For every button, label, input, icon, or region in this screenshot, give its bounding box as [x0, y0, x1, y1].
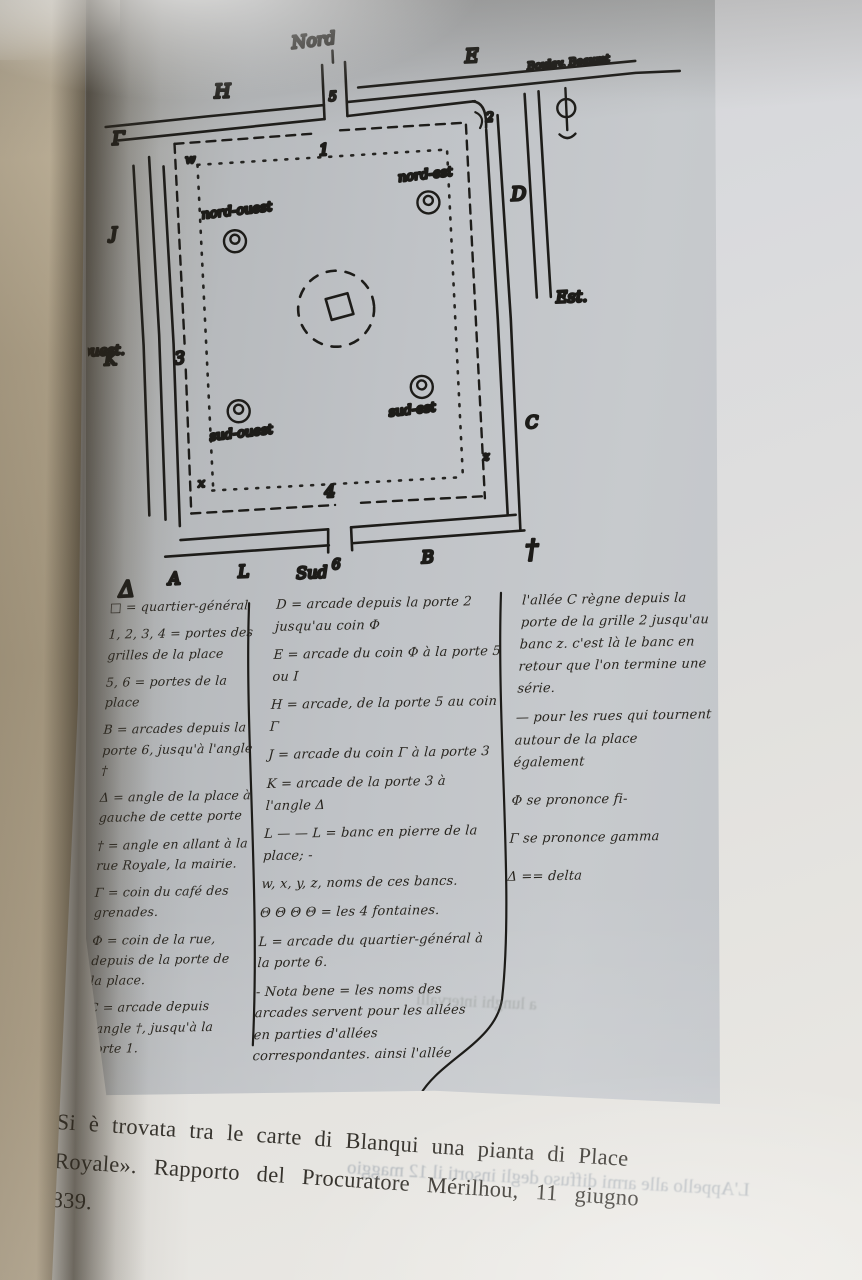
- gate-5: 5: [328, 89, 337, 104]
- legend-column-3: l'allée C règne depuis la porte de la gr…: [507, 587, 719, 896]
- gutter-shadow: [36, 0, 162, 1280]
- legend-entry: — pour les rues qui tournent autour de l…: [513, 705, 712, 775]
- place-royale-map: Nord Sud Est. ouest. Boulev. Beaumt H E …: [73, 0, 720, 618]
- legend-entry: L — — L = banc en pierre de la place; -: [262, 820, 492, 867]
- fountain-se: [410, 375, 433, 398]
- gate-3: 3: [174, 349, 186, 369]
- legend-entry: Δ == delta: [507, 863, 704, 889]
- legend-entry: K = arcade de la porte 3 à l'angle Δ: [265, 770, 495, 817]
- label-C: C: [525, 413, 539, 434]
- fountain-label-se: sud-est: [388, 400, 438, 420]
- fountain-nw: [223, 230, 246, 253]
- legend-entry: L = arcade du quartier-général à la port…: [257, 928, 487, 975]
- legend-entry: D = arcade depuis la porte 2 jusqu'au co…: [274, 591, 504, 638]
- legend-entry: J = arcade du coin Γ à la porte 3: [268, 741, 497, 767]
- label-D: D: [510, 183, 527, 206]
- gate-4: 4: [323, 482, 336, 503]
- legend-entry: E = arcade du coin Φ à la porte 5 ou I: [272, 641, 502, 688]
- fountain-ne: [417, 191, 440, 214]
- label-A: A: [166, 569, 181, 590]
- east-wall: [473, 91, 562, 532]
- book-page-photo: Nord Sud Est. ouest. Boulev. Beaumt H E …: [0, 0, 862, 1280]
- label-E: E: [463, 45, 479, 68]
- legend-entry: l'allée C règne depuis la porte de la gr…: [517, 587, 719, 701]
- fountain-sw: [227, 400, 250, 423]
- bench-z: z: [482, 449, 491, 463]
- bench-x: x: [198, 476, 206, 490]
- gate-1: 1: [318, 140, 329, 159]
- legend-entry: Θ Θ Θ Θ = les 4 fontaines.: [259, 899, 488, 925]
- facsimile-plan: Nord Sud Est. ouest. Boulev. Beaumt H E …: [86, 0, 720, 1104]
- gate-2: 2: [484, 110, 494, 125]
- legend-entry: Γ se prononce gamma: [509, 825, 706, 851]
- bench-w: w: [185, 152, 197, 166]
- central-monument: [296, 269, 375, 348]
- legend-entry: w, x, y, z, noms de ces bancs.: [261, 870, 490, 896]
- label-B: B: [420, 548, 434, 569]
- legend-entry: Φ se prononce fi-: [511, 787, 708, 813]
- label-nord: Nord: [290, 28, 337, 53]
- gate-6: 6: [331, 557, 341, 573]
- phi-symbol: [556, 88, 576, 139]
- map-legend: □ = quartier-général 1, 2, 3, 4 = portes…: [92, 587, 727, 1104]
- legend-entry: H = arcade, de la porte 5 au coin Γ: [269, 691, 499, 738]
- figure-caption: Si è trovata tra le carte di Blanqui una…: [50, 1102, 836, 1269]
- grille-dashed-outer: [174, 123, 485, 514]
- label-sud: Sud: [296, 562, 328, 582]
- legend-column-2: D = arcade depuis la porte 2 jusqu'au co…: [252, 591, 505, 1075]
- label-cross: †: [525, 535, 540, 566]
- label-street: Boulev. Beaumt: [526, 53, 611, 73]
- fountain-label-nw: nord-ouest: [201, 200, 274, 223]
- north-wall: [103, 35, 682, 141]
- ne-corner-mark: [475, 112, 482, 128]
- fountain-label-sw: sud-ouest: [209, 422, 275, 444]
- fountain-label-ne: nord-est: [397, 164, 454, 185]
- label-est: Est.: [554, 286, 587, 306]
- south-wall: [164, 514, 525, 559]
- legend-entry: - Nota bene = les noms des arcades serve…: [252, 978, 484, 1068]
- label-H: H: [213, 80, 232, 103]
- label-L: L: [237, 562, 250, 583]
